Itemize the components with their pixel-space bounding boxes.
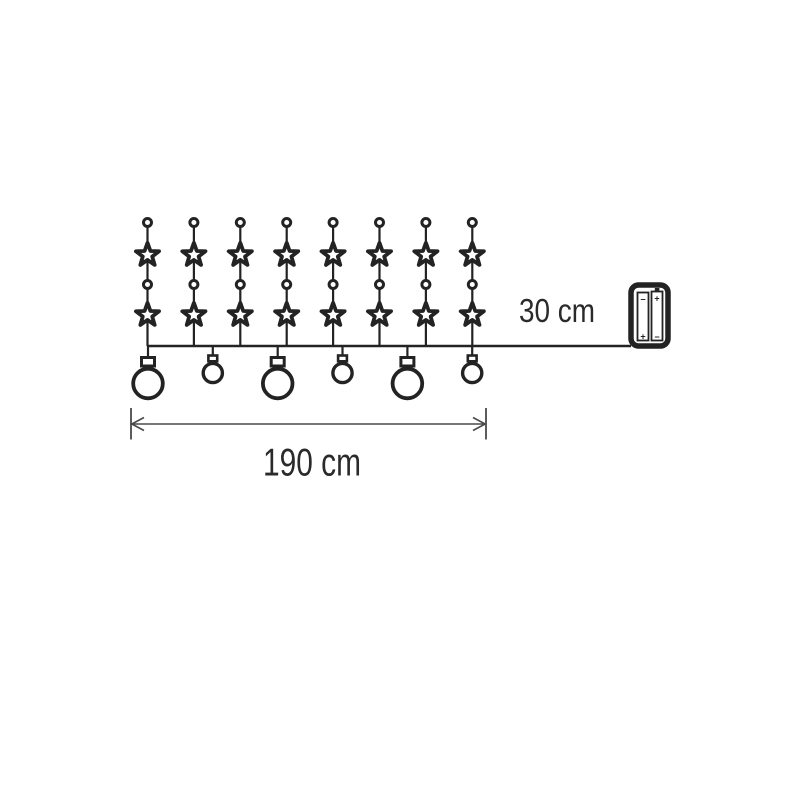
lead-length-label: 30 cm [519,292,595,329]
battery-box: − + + − [631,285,668,346]
battery-polarity-mark: − [640,295,645,305]
star-strand [461,219,484,347]
star-strand [275,219,298,347]
small-ball-light [203,346,222,383]
star-strand [136,219,159,347]
total-length-label: 190 cm [263,442,361,485]
battery-terminal-nub [655,288,660,292]
star-strand [229,219,252,347]
battery-polarity-mark: − [654,332,659,342]
battery-polarity-mark: + [654,294,659,304]
large-ball-light [133,346,163,398]
star-strand [368,219,391,347]
small-ball-light [463,346,482,383]
battery-polarity-mark: + [640,332,645,342]
diagram-canvas: 30 cm − + + − 190 cm [0,0,800,800]
star-strand [182,219,205,347]
star-strand [322,219,345,347]
small-ball-light [333,346,352,383]
dimension-line [131,408,486,440]
string-lights-diagram: 30 cm − + + − 190 cm [0,0,800,800]
star-strand [414,219,437,347]
large-ball-light [263,346,293,398]
large-ball-light [393,346,423,398]
